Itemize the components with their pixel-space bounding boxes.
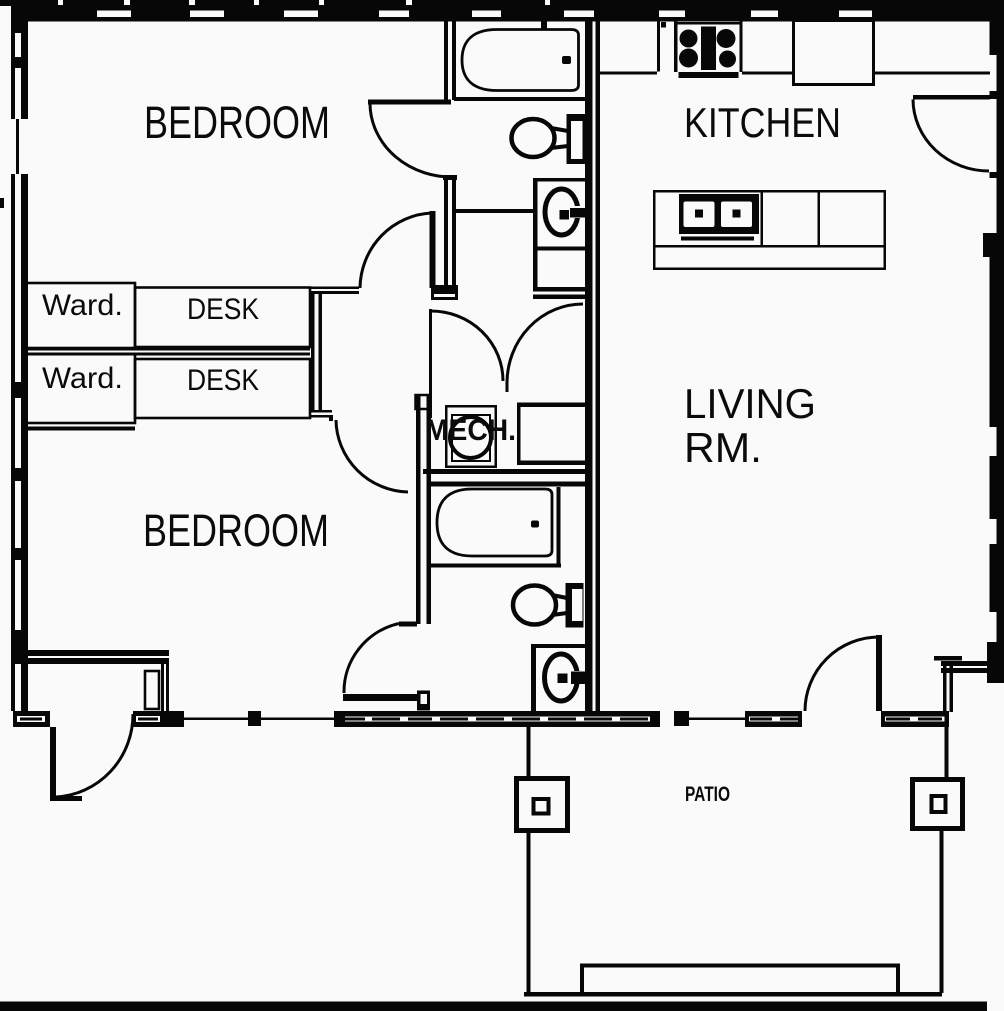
svg-text:LIVING: LIVING bbox=[684, 380, 816, 427]
svg-text:Ward.: Ward. bbox=[42, 362, 123, 395]
svg-text:BEDROOM: BEDROOM bbox=[144, 97, 330, 148]
svg-text:Ward.: Ward. bbox=[42, 289, 123, 322]
svg-text:RM.: RM. bbox=[684, 424, 762, 471]
svg-text:KITCHEN: KITCHEN bbox=[684, 99, 841, 146]
svg-text:DESK: DESK bbox=[187, 293, 259, 326]
svg-text:MECH.: MECH. bbox=[425, 414, 516, 447]
svg-text:BEDROOM: BEDROOM bbox=[143, 505, 329, 556]
svg-text:DESK: DESK bbox=[187, 364, 259, 397]
svg-text:PATIO: PATIO bbox=[685, 783, 730, 806]
